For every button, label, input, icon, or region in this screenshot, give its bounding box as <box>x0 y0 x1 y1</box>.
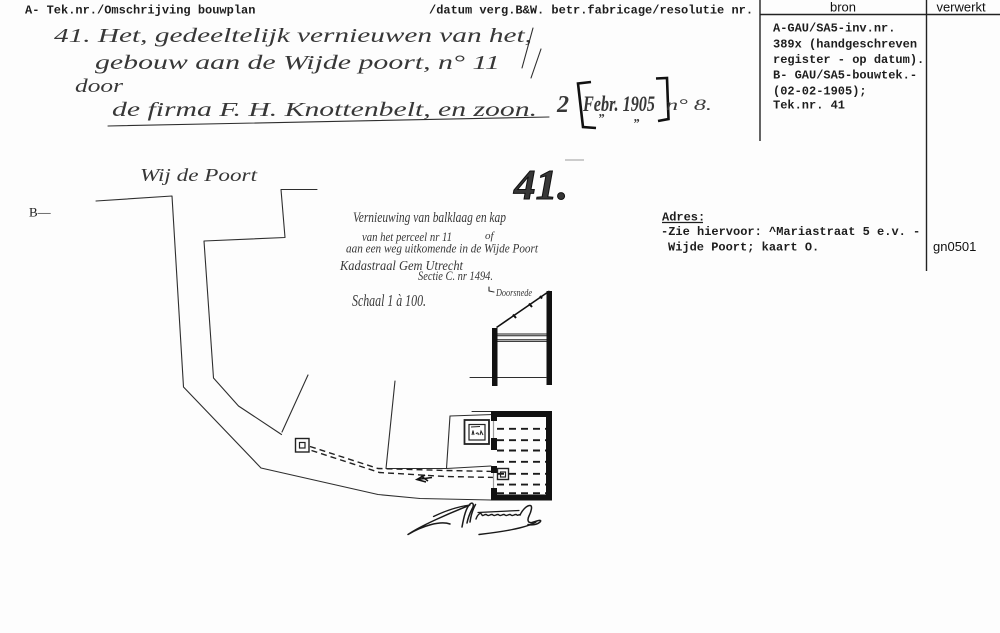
svg-text:(02-02-1905);: (02-02-1905); <box>773 85 867 99</box>
svg-text:bron: bron <box>830 0 856 15</box>
svg-text:gebouw aan de Wijde poort, n°: gebouw aan de Wijde poort, n° 11 <box>95 52 500 74</box>
svg-text:Wij de Poort: Wij de Poort <box>140 165 259 185</box>
svg-text:de firma F. H. Knottenbelt, en: de firma F. H. Knottenbelt, en zoon. <box>112 99 537 121</box>
svg-text:/datum verg.B&W. betr.fabricag: /datum verg.B&W. betr.fabricage/resoluti… <box>429 4 753 18</box>
svg-text:-Zie hiervoor: ^Mariastraat 5: -Zie hiervoor: ^Mariastraat 5 e.v. - <box>661 225 920 239</box>
svg-text:verwerkt: verwerkt <box>936 0 986 15</box>
svg-text:Vernieuwing van balklaag en ka: Vernieuwing van balklaag en kap <box>353 210 506 226</box>
svg-text:Wijde Poort; kaart O.: Wijde Poort; kaart O. <box>668 241 819 255</box>
svg-text:Tek.nr. 41: Tek.nr. 41 <box>773 99 845 113</box>
svg-text:Schaal 1 à 100.: Schaal 1 à 100. <box>352 291 426 310</box>
svg-text:Sectie C. nr 1494.: Sectie C. nr 1494. <box>418 269 493 283</box>
svg-text:A- Tek.nr./Omschrijving bouwpl: A- Tek.nr./Omschrijving bouwplan <box>25 4 255 18</box>
svg-text:41.: 41. <box>513 163 568 209</box>
svg-text:2: 2 <box>556 92 569 118</box>
svg-text:B—: B— <box>29 205 52 220</box>
svg-text:„: „ <box>599 104 606 119</box>
svg-text:A-GAU/SA5-inv.nr.: A-GAU/SA5-inv.nr. <box>773 22 895 36</box>
svg-text:„: „ <box>634 109 641 124</box>
svg-text:door: door <box>75 76 124 97</box>
svg-text:B- GAU/SA5-bouwtek.-: B- GAU/SA5-bouwtek.- <box>773 69 917 83</box>
svg-text:aan een weg uitkomende in de W: aan een weg uitkomende in de Wijde Poort <box>346 242 538 256</box>
svg-text:389x (handgeschreven: 389x (handgeschreven <box>773 38 917 52</box>
svg-text:gn0501: gn0501 <box>933 239 976 254</box>
svg-text:Febr. 1905: Febr. 1905 <box>582 91 655 116</box>
svg-text:n° 8.: n° 8. <box>666 97 712 114</box>
svg-text:41. Het, gedeeltelijk vernieu: 41. Het, gedeeltelijk vernieuwen van het… <box>54 25 532 47</box>
svg-text:register - op datum).: register - op datum). <box>773 53 924 67</box>
svg-text:Doorsnede: Doorsnede <box>495 288 532 299</box>
